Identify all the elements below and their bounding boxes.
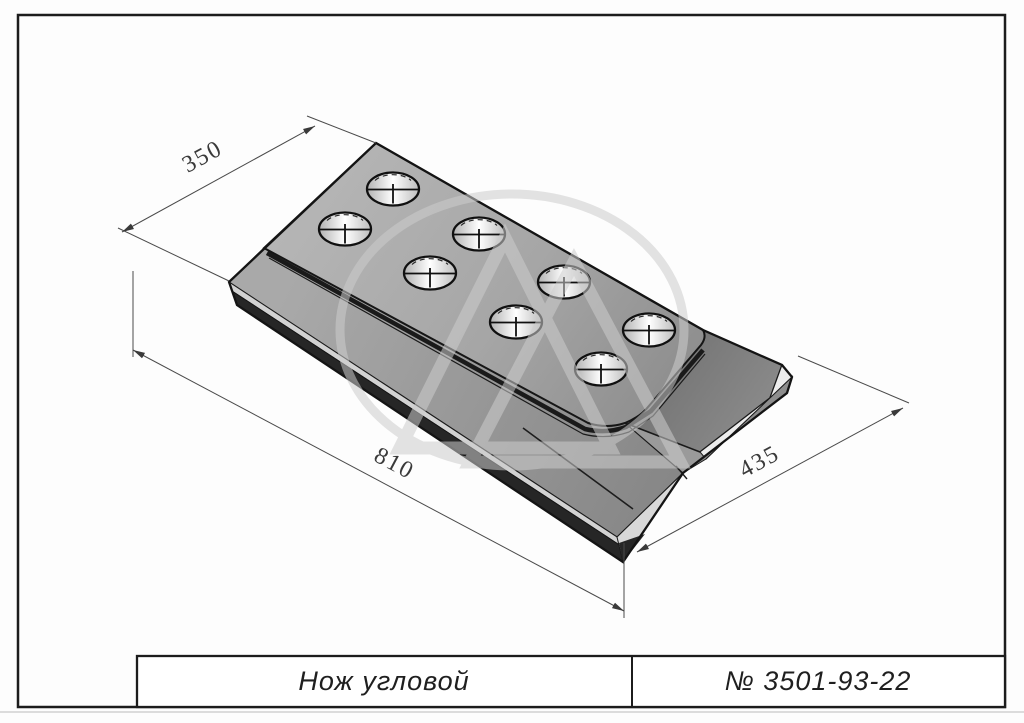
extension-line bbox=[118, 228, 229, 281]
dimension-line bbox=[122, 126, 315, 232]
technical-drawing-canvas: 350 810 435 Нож угловой № 3501-93-22 bbox=[0, 0, 1024, 723]
dimension-value: 435 bbox=[735, 440, 784, 483]
title-block: Нож угловой № 3501-93-22 bbox=[137, 656, 1005, 707]
extension-line bbox=[307, 116, 376, 143]
part-isometric-view bbox=[229, 143, 792, 562]
countersunk-hole bbox=[623, 314, 675, 347]
part-name-cell: Нож угловой bbox=[298, 666, 469, 696]
countersunk-hole bbox=[319, 213, 371, 246]
extension-line bbox=[798, 356, 909, 403]
part-name-text: Нож угловой bbox=[298, 666, 469, 696]
part-number-text: № 3501-93-22 bbox=[725, 666, 912, 696]
countersunk-hole bbox=[367, 173, 419, 206]
part-number-cell: № 3501-93-22 bbox=[725, 666, 912, 696]
drawing-sheet: 350 810 435 Нож угловой № 3501-93-22 bbox=[0, 0, 1024, 723]
countersunk-hole bbox=[404, 257, 456, 290]
dimension-value: 350 bbox=[178, 135, 227, 178]
